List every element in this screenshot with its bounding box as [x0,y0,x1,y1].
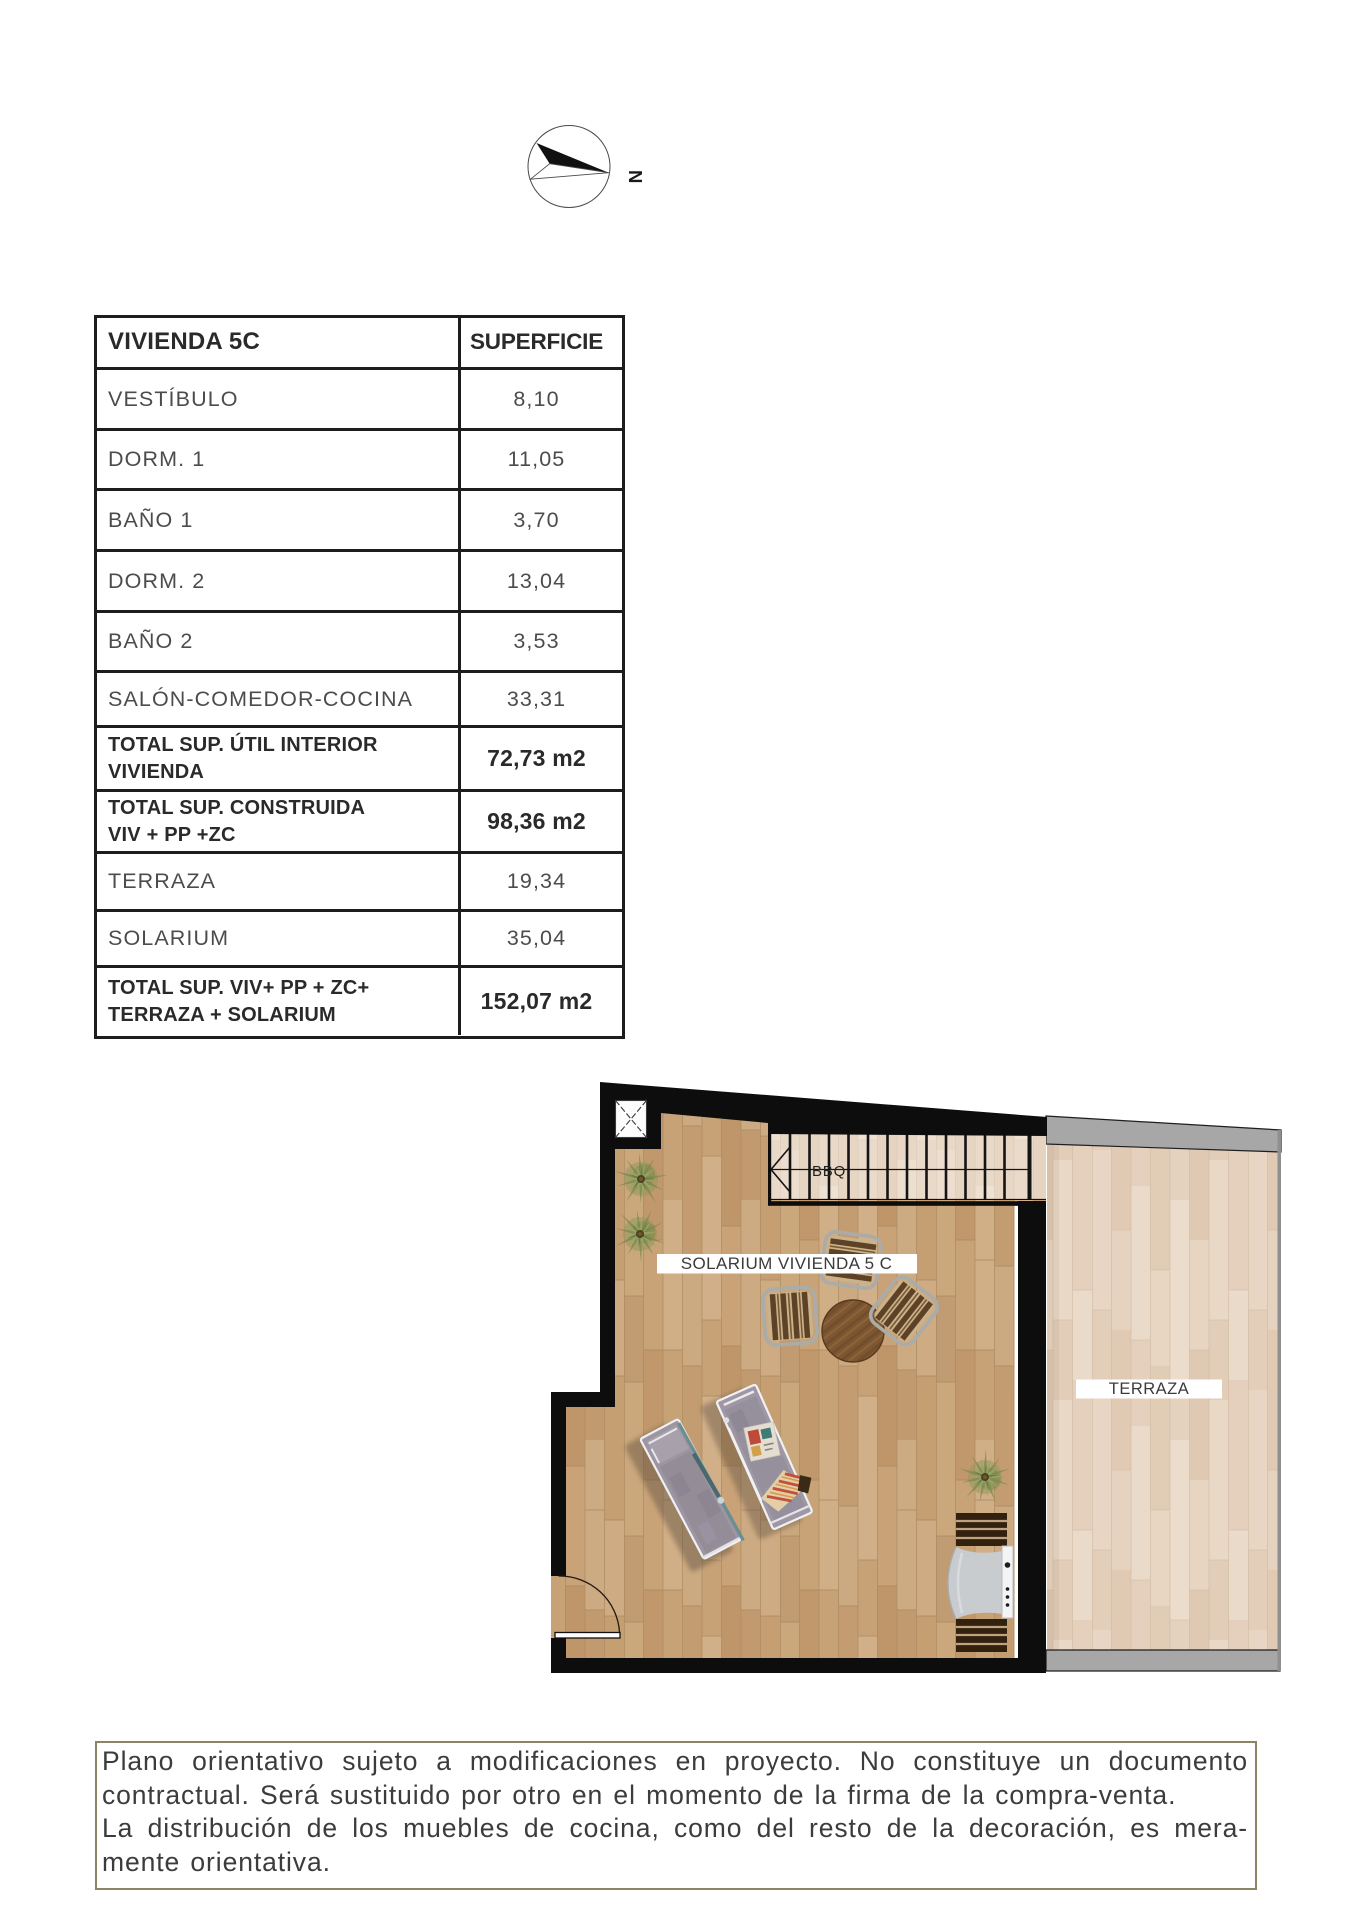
svg-text:BBQ: BBQ [812,1163,846,1180]
svg-text:TERRAZA: TERRAZA [1109,1380,1190,1398]
svg-text:SOLARIUM VIVIENDA 5 C: SOLARIUM VIVIENDA 5 C [681,1254,893,1273]
svg-text:N: N [625,170,646,183]
